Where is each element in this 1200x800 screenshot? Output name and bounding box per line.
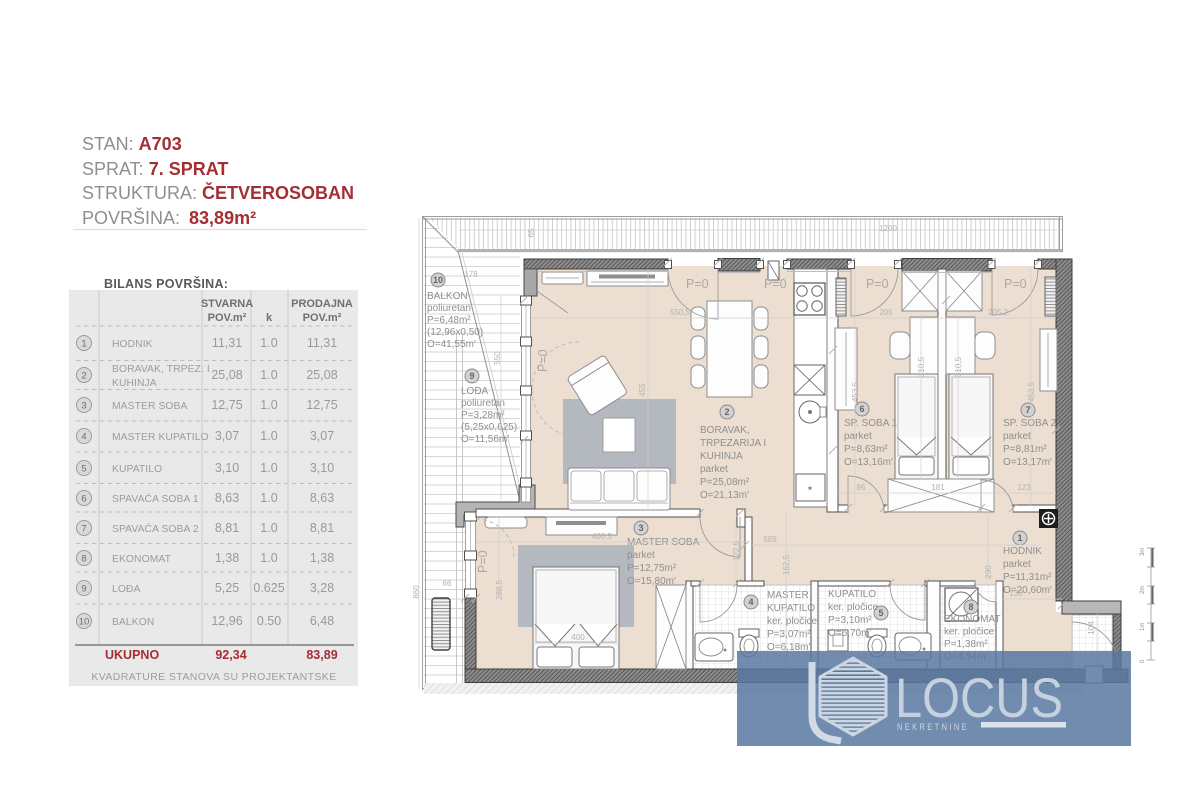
svg-text:1m: 1m	[1140, 623, 1146, 631]
svg-text:poliuretan: poliuretan	[427, 303, 471, 314]
svg-text:11,31: 11,31	[212, 336, 242, 350]
svg-text:4: 4	[81, 432, 86, 443]
svg-text:P=3,07m²: P=3,07m²	[767, 629, 811, 640]
svg-text:3m: 3m	[1140, 548, 1146, 556]
svg-text:STRUKTURA: ČETVEROSOBAN: STRUKTURA: ČETVEROSOBAN	[82, 182, 354, 203]
svg-text:400,5: 400,5	[592, 532, 613, 541]
svg-text:205,2: 205,2	[988, 308, 1009, 317]
svg-text:8,81: 8,81	[215, 521, 239, 535]
svg-text:BILANS POVRŠINA:: BILANS POVRŠINA:	[104, 276, 228, 291]
svg-text:P=11,31m²: P=11,31m²	[1003, 572, 1052, 583]
svg-text:P=0: P=0	[686, 277, 709, 291]
svg-text:P=6,48m²: P=6,48m²	[427, 315, 471, 326]
svg-text:BALKON: BALKON	[112, 617, 154, 628]
svg-text:KUHINJA: KUHINJA	[112, 378, 157, 389]
svg-text:5,25: 5,25	[215, 581, 239, 595]
svg-text:parket: parket	[700, 464, 728, 475]
svg-text:1.0: 1.0	[260, 461, 277, 475]
svg-text:poliuretan: poliuretan	[461, 398, 505, 409]
svg-text:8,81: 8,81	[310, 521, 334, 535]
svg-text:BORAVAK, TRPEZ. I: BORAVAK, TRPEZ. I	[112, 364, 210, 375]
svg-text:O=15,80m′: O=15,80m′	[627, 576, 676, 587]
svg-text:6: 6	[81, 494, 86, 505]
svg-text:(5,25x0,625): (5,25x0,625)	[461, 422, 517, 433]
svg-text:P=3,28m²: P=3,28m²	[461, 410, 505, 421]
svg-text:453,5: 453,5	[1027, 381, 1036, 402]
svg-text:P=12,75m²: P=12,75m²	[627, 563, 677, 574]
svg-text:LOĐA: LOĐA	[461, 386, 489, 397]
svg-text:178: 178	[464, 270, 478, 279]
svg-text:HODNIK: HODNIK	[1003, 546, 1042, 557]
svg-text:9: 9	[81, 584, 86, 595]
svg-text:11,31: 11,31	[307, 336, 337, 350]
svg-text:83,89: 83,89	[306, 648, 337, 662]
svg-text:KUPATILO: KUPATILO	[828, 589, 876, 600]
svg-text:104: 104	[1087, 621, 1096, 635]
svg-text:3,10: 3,10	[215, 461, 239, 475]
svg-text:✶: ✶	[807, 484, 814, 493]
svg-text:LOĐA: LOĐA	[112, 584, 140, 595]
svg-text:HODNIK: HODNIK	[112, 339, 153, 350]
svg-text:96: 96	[857, 483, 866, 492]
svg-text:STAN: A703: STAN: A703	[82, 134, 182, 154]
svg-text:P=8,63m²: P=8,63m²	[844, 444, 888, 455]
svg-text:10: 10	[433, 275, 443, 285]
svg-text:P=25,08m²: P=25,08m²	[700, 477, 750, 488]
svg-text:NEKRETNINE: NEKRETNINE	[897, 722, 969, 733]
svg-text:92,34: 92,34	[215, 648, 246, 662]
svg-text:7: 7	[1025, 405, 1030, 415]
svg-text:P=0: P=0	[1004, 277, 1027, 291]
svg-text:3: 3	[81, 401, 86, 412]
svg-text:3,07: 3,07	[310, 429, 334, 443]
svg-text:BORAVAK,: BORAVAK,	[700, 425, 750, 436]
svg-text:3,28: 3,28	[310, 581, 334, 595]
svg-text:8: 8	[968, 602, 973, 612]
svg-text:310,5: 310,5	[917, 356, 926, 377]
svg-text:LOCUS: LOCUS	[895, 666, 1063, 729]
svg-text:PRODAJNA: PRODAJNA	[291, 298, 353, 310]
svg-text:453,5: 453,5	[851, 381, 860, 402]
svg-text:P=0: P=0	[866, 277, 889, 291]
svg-text:EKONOMAT: EKONOMAT	[944, 614, 1000, 625]
svg-text:4: 4	[748, 597, 753, 607]
svg-text:2: 2	[724, 407, 729, 417]
svg-text:BALKON: BALKON	[427, 291, 468, 302]
svg-text:POV.m²: POV.m²	[208, 312, 247, 324]
svg-text:O=41,55m′: O=41,55m′	[427, 339, 476, 350]
svg-text:0.50: 0.50	[257, 614, 281, 628]
svg-text:MASTER KUPATILO: MASTER KUPATILO	[112, 432, 209, 443]
svg-text:10: 10	[79, 617, 90, 628]
svg-text:550,5: 550,5	[670, 308, 691, 317]
svg-text:123: 123	[1017, 483, 1031, 492]
svg-text:1.0: 1.0	[260, 491, 277, 505]
svg-text:25,08: 25,08	[306, 368, 337, 382]
svg-text:O=6,70m′: O=6,70m′	[828, 628, 871, 639]
svg-text:310,5: 310,5	[954, 356, 963, 377]
svg-text:5: 5	[878, 608, 883, 618]
svg-text:MASTER: MASTER	[767, 590, 809, 601]
svg-text:1: 1	[81, 339, 86, 350]
svg-text:P=0: P=0	[764, 277, 787, 291]
svg-text:1,38: 1,38	[310, 551, 334, 565]
svg-text:1.0: 1.0	[260, 429, 277, 443]
svg-text:2m: 2m	[1140, 586, 1146, 594]
svg-text:P=8,81m²: P=8,81m²	[1003, 444, 1047, 455]
svg-text:parket: parket	[844, 431, 872, 442]
svg-text:162,5: 162,5	[782, 554, 791, 575]
svg-text:k: k	[266, 312, 273, 324]
svg-text:65: 65	[527, 228, 536, 237]
svg-text:O=13,16m′: O=13,16m′	[844, 457, 893, 468]
svg-text:POVRŠINA: 83,89m²: POVRŠINA: 83,89m²	[82, 207, 256, 228]
svg-text:1.0: 1.0	[260, 521, 277, 535]
svg-text:O=21,13m′: O=21,13m′	[700, 490, 749, 501]
svg-text:3,10: 3,10	[310, 461, 334, 475]
svg-text:0.625: 0.625	[253, 581, 284, 595]
svg-text:UKUPNO: UKUPNO	[105, 648, 159, 662]
svg-text:6,48: 6,48	[310, 614, 334, 628]
svg-text:9: 9	[469, 371, 474, 381]
svg-text:122,5: 122,5	[732, 540, 741, 561]
svg-text:EKONOMAT: EKONOMAT	[112, 554, 172, 565]
svg-text:parket: parket	[1003, 559, 1031, 570]
svg-text:2: 2	[81, 371, 86, 382]
svg-text:66: 66	[443, 579, 452, 588]
svg-text:parket: parket	[1003, 431, 1031, 442]
svg-text:12,96: 12,96	[211, 614, 242, 628]
svg-text:ker. pločice: ker. pločice	[828, 602, 878, 613]
svg-text:POV.m²: POV.m²	[303, 312, 342, 324]
svg-text:STVARNA: STVARNA	[201, 298, 253, 310]
svg-text:MASTER SOBA: MASTER SOBA	[112, 401, 188, 412]
svg-text:455: 455	[638, 383, 647, 397]
svg-text:KVADRATURE STANOVA SU PROJEKTA: KVADRATURE STANOVA SU PROJEKTANTSKE	[91, 671, 336, 683]
svg-text:860: 860	[412, 585, 421, 599]
svg-text:3,07: 3,07	[215, 429, 239, 443]
svg-text:1.0: 1.0	[260, 336, 277, 350]
svg-text:O=11,56m′: O=11,56m′	[461, 434, 509, 445]
svg-text:3: 3	[638, 523, 643, 533]
svg-text:1,38: 1,38	[215, 551, 239, 565]
svg-text:8,63: 8,63	[215, 491, 239, 505]
svg-text:(12,96x0,50): (12,96x0,50)	[427, 327, 483, 338]
svg-text:290: 290	[984, 565, 993, 579]
svg-text:12,75: 12,75	[211, 398, 242, 412]
svg-text:P=0: P=0	[476, 550, 490, 573]
svg-text:SPRAT: 7. SPRAT: SPRAT: 7. SPRAT	[82, 159, 228, 179]
svg-text:25,08: 25,08	[211, 368, 242, 382]
svg-text:SPAVAĆA SOBA 2: SPAVAĆA SOBA 2	[112, 522, 199, 535]
svg-text:P=0: P=0	[536, 349, 550, 372]
svg-text:KUHINJA: KUHINJA	[700, 451, 743, 462]
svg-text:205: 205	[879, 308, 893, 317]
svg-text:400: 400	[571, 633, 585, 642]
svg-text:181: 181	[931, 483, 945, 492]
svg-text:MASTER SOBA: MASTER SOBA	[627, 537, 700, 548]
svg-text:130: 130	[1009, 589, 1023, 598]
svg-text:SP. SOBA 2: SP. SOBA 2	[1003, 418, 1057, 429]
svg-text:589: 589	[763, 535, 777, 544]
svg-text:P=3,10m²: P=3,10m²	[828, 615, 872, 626]
svg-text:ker. pločice: ker. pločice	[944, 627, 994, 638]
svg-text:7: 7	[81, 524, 86, 535]
svg-text:1: 1	[1017, 533, 1022, 543]
svg-text:8,63: 8,63	[310, 491, 334, 505]
svg-text:O=13,17m′: O=13,17m′	[1003, 457, 1052, 468]
svg-text:8: 8	[81, 554, 86, 565]
svg-text:TRPEZARIJA I: TRPEZARIJA I	[700, 438, 766, 449]
svg-text:550: 550	[493, 351, 502, 365]
svg-text:P=1,38m²: P=1,38m²	[944, 639, 988, 650]
svg-text:KUPATILO: KUPATILO	[112, 464, 162, 475]
svg-text:6: 6	[859, 404, 864, 414]
svg-text:12,75: 12,75	[306, 398, 337, 412]
svg-text:parket: parket	[627, 550, 655, 561]
svg-text:KUPATILO: KUPATILO	[767, 603, 815, 614]
svg-text:1.0: 1.0	[260, 368, 277, 382]
svg-text:1200: 1200	[879, 224, 897, 233]
svg-text:1.0: 1.0	[260, 551, 277, 565]
svg-text:5: 5	[81, 464, 86, 475]
svg-text:1.0: 1.0	[260, 398, 277, 412]
svg-text:SP. SOBA 1: SP. SOBA 1	[844, 418, 898, 429]
svg-text:288,5: 288,5	[495, 579, 504, 600]
svg-text:ker. pločice: ker. pločice	[767, 616, 817, 627]
svg-text:SPAVAĆA SOBA 1: SPAVAĆA SOBA 1	[112, 492, 199, 505]
